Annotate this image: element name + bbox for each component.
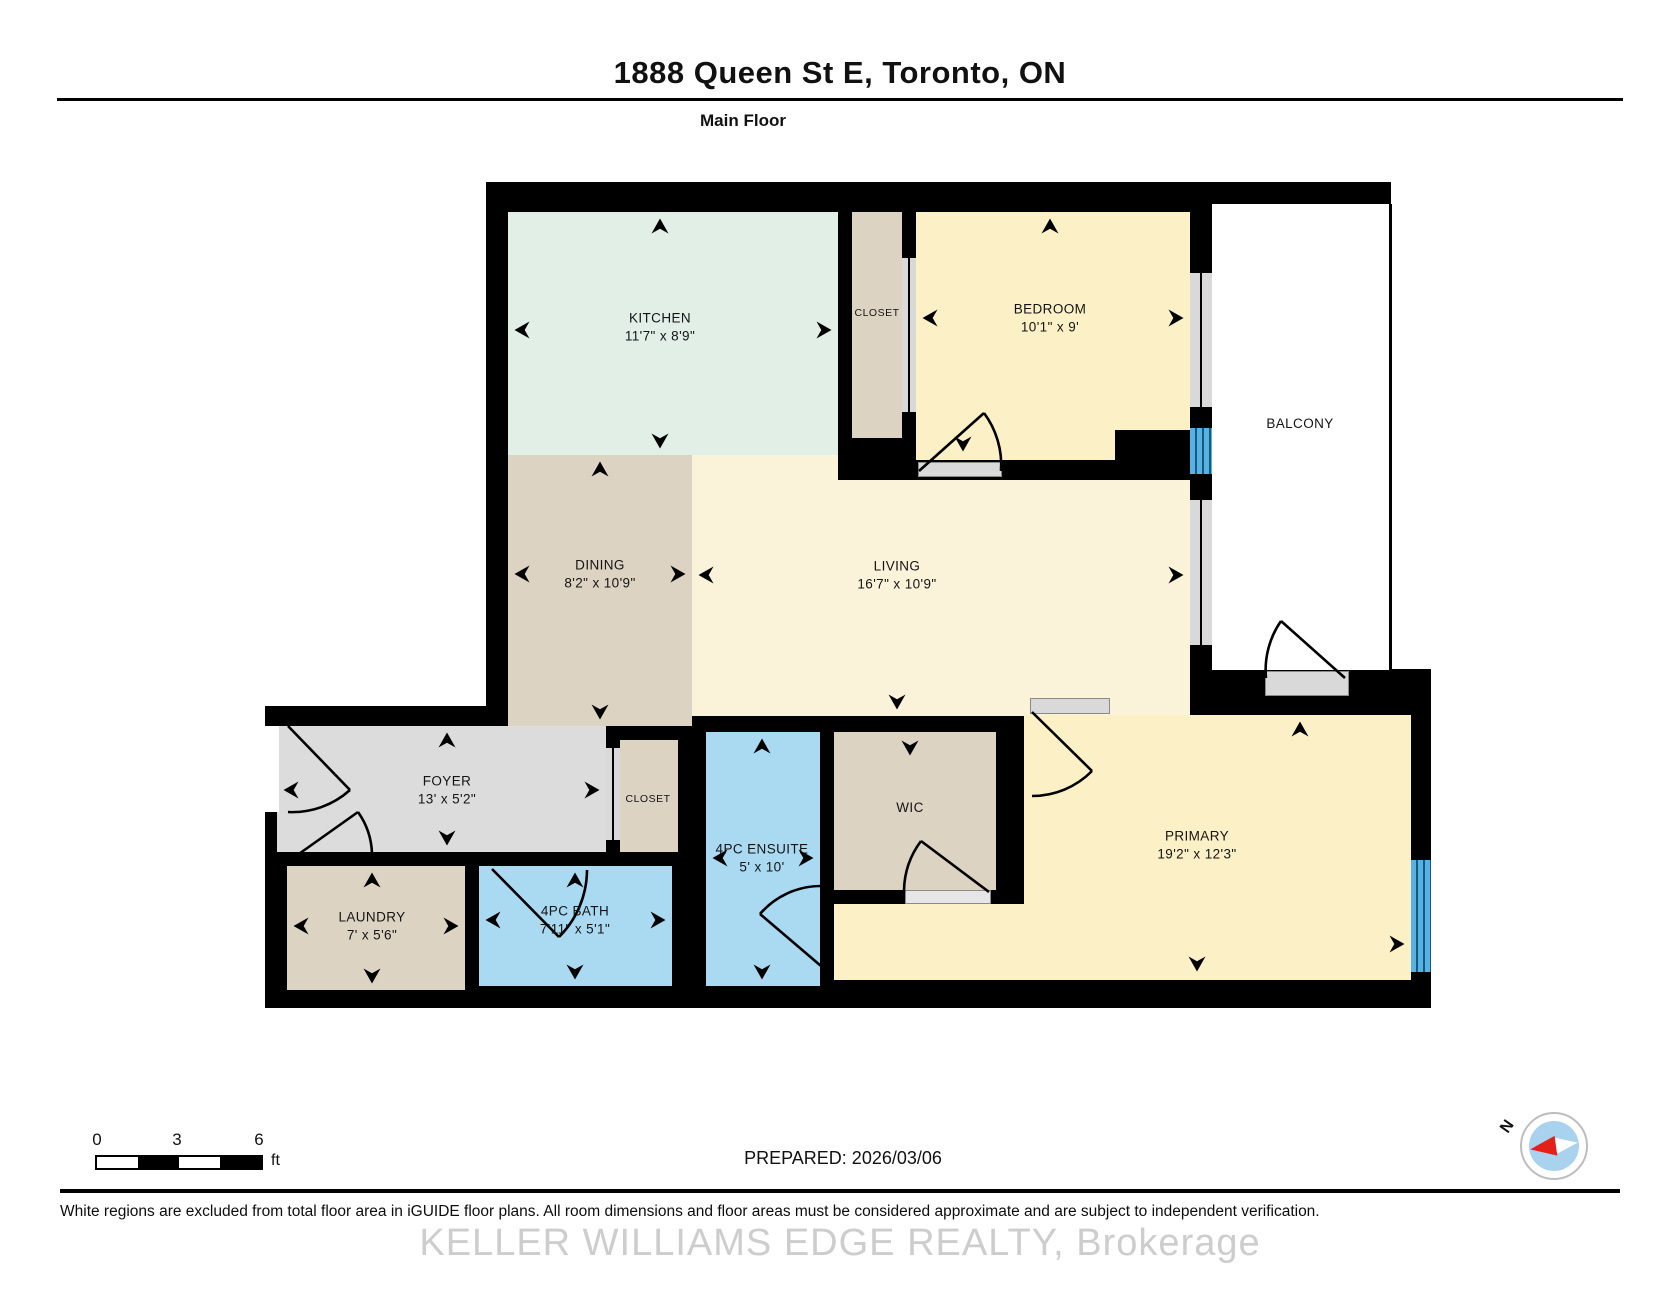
window-primary (1411, 860, 1431, 972)
compass-icon (1520, 1112, 1588, 1180)
room-label-wic: WIC (896, 799, 923, 817)
floor-plan: KITCHEN 11'7" x 8'9" CLOSET BEDROOM 10'1… (0, 0, 1680, 1299)
room-name: WIC (896, 799, 923, 817)
room-dims: 7' x 5'6" (338, 926, 405, 944)
room-living-a (692, 455, 838, 716)
room-living-c (916, 480, 1190, 716)
room-dims: 8'2" x 10'9" (564, 574, 635, 592)
balcony-slider-window (1190, 428, 1212, 474)
closet-foyer-slider (606, 748, 620, 840)
room-label-laundry: LAUNDRY 7' x 5'6" (338, 908, 405, 943)
room-label-primary: PRIMARY 19'2" x 12'3" (1157, 827, 1236, 862)
window-bedroom (1190, 273, 1212, 407)
room-label-kitchen: KITCHEN 11'7" x 8'9" (625, 309, 695, 344)
room-balcony (1212, 204, 1392, 670)
floor-plan-page: 1888 Queen St E, Toronto, ON Main Floor (0, 0, 1680, 1299)
room-primary-ext (834, 904, 1024, 980)
scale-unit: ft (271, 1152, 280, 1170)
room-dims: 19'2" x 12'3" (1157, 845, 1236, 863)
room-label-dining: DINING 8'2" x 10'9" (564, 556, 635, 591)
room-name: BEDROOM (1014, 300, 1087, 318)
room-dims: 13' x 5'2" (418, 790, 476, 808)
room-name: LAUNDRY (338, 908, 405, 926)
room-name: PRIMARY (1157, 827, 1236, 845)
door-sill-balcony (1265, 671, 1349, 696)
door-sill-primary (1030, 698, 1110, 714)
brokerage-watermark: KELLER WILLIAMS EDGE REALTY, Brokerage (419, 1222, 1260, 1265)
room-label-bedroom: BEDROOM 10'1" x 9' (1014, 300, 1087, 335)
scale-bar-segments (95, 1155, 263, 1170)
room-label-bath: 4PC BATH 7'11" x 5'1" (540, 902, 610, 937)
room-label-ensuite: 4PC ENSUITE 5' x 10' (716, 840, 809, 875)
room-name: LIVING (857, 557, 936, 575)
room-label-closet-foyer: CLOSET (625, 793, 670, 807)
room-bedroom (916, 212, 1190, 460)
room-closet-top (852, 212, 902, 438)
room-name: BALCONY (1266, 415, 1333, 433)
compass-needle-south (1555, 1135, 1579, 1154)
room-label-closet-top: CLOSET (854, 307, 899, 321)
door-sill-bedroom (918, 462, 1002, 477)
room-label-balcony: BALCONY (1266, 415, 1333, 433)
prepared-date: PREPARED: 2026/03/06 (744, 1148, 942, 1169)
room-name: KITCHEN (625, 309, 695, 327)
room-name: CLOSET (854, 307, 899, 321)
room-dims: 7'11" x 5'1" (540, 920, 610, 938)
room-name: FOYER (418, 772, 476, 790)
entry-door-opening (261, 726, 279, 812)
window-line (1200, 273, 1202, 407)
room-living-b (838, 480, 916, 716)
scale-tick: 6 (254, 1130, 263, 1150)
window-living (1190, 500, 1212, 645)
room-dims: 10'1" x 9' (1014, 318, 1087, 336)
room-label-foyer: FOYER 13' x 5'2" (418, 772, 476, 807)
window-line (612, 748, 614, 840)
window-line (908, 258, 910, 412)
wall-column-living (1115, 430, 1190, 480)
scale-tick: 0 (92, 1130, 101, 1150)
scale-segment (138, 1157, 179, 1168)
closet-top-slider (902, 258, 916, 412)
scale-segment (220, 1157, 261, 1168)
room-name: 4PC ENSUITE (716, 840, 809, 858)
disclaimer-text: White regions are excluded from total fl… (60, 1203, 1320, 1221)
room-name: 4PC BATH (540, 902, 610, 920)
room-dims: 16'7" x 10'9" (857, 575, 936, 593)
scale-tick: 3 (172, 1130, 181, 1150)
room-dims: 11'7" x 8'9" (625, 327, 695, 345)
door-sill-wic (905, 890, 991, 904)
room-name: CLOSET (625, 793, 670, 807)
footer-divider (60, 1189, 1620, 1193)
wall-balcony-top (1212, 182, 1391, 204)
window-line (1200, 500, 1202, 645)
room-dims: 5' x 10' (716, 858, 809, 876)
room-label-living: LIVING 16'7" x 10'9" (857, 557, 936, 592)
room-name: DINING (564, 556, 635, 574)
compass-needle-north (1529, 1136, 1558, 1159)
